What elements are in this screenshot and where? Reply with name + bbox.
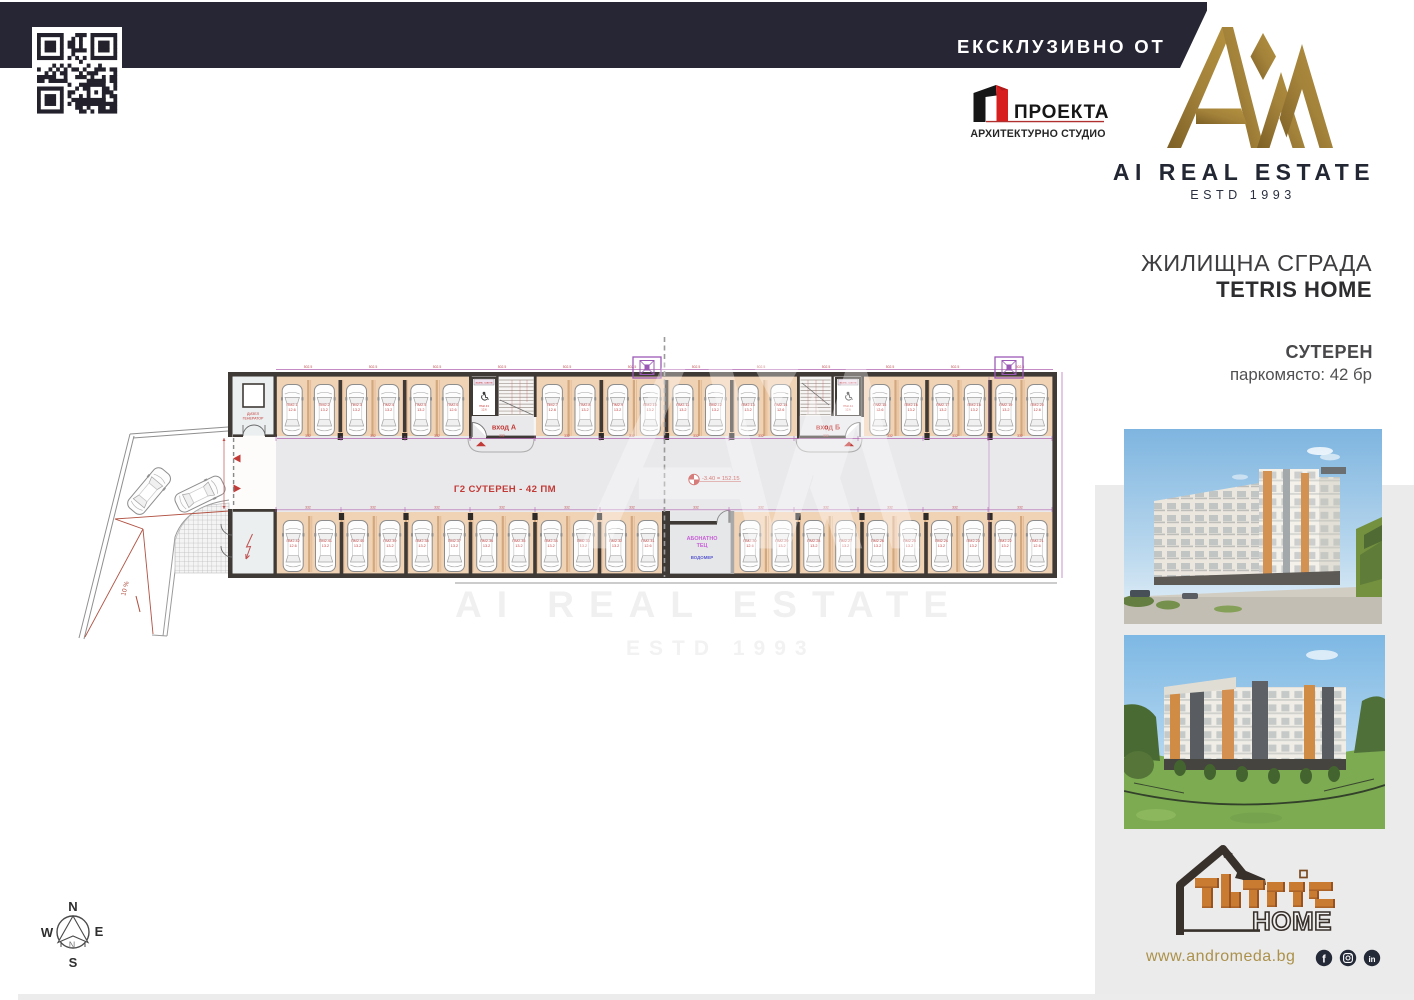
svg-text:ПМ2.17: ПМ2.17 bbox=[936, 403, 949, 407]
svg-text:ПМ2.22: ПМ2.22 bbox=[998, 539, 1011, 543]
svg-text:332: 332 bbox=[499, 505, 505, 509]
svg-text:13.2: 13.2 bbox=[1001, 544, 1008, 548]
svg-text:332: 332 bbox=[305, 434, 311, 438]
svg-text:13.2: 13.2 bbox=[354, 544, 361, 548]
svg-text:ПМ2.6: ПМ2.6 bbox=[447, 403, 458, 407]
svg-text:13.2: 13.2 bbox=[908, 408, 915, 412]
svg-text:12.6: 12.6 bbox=[777, 408, 784, 412]
svg-text:W: W bbox=[41, 925, 54, 940]
svg-text:N: N bbox=[68, 899, 77, 914]
svg-text:502.5: 502.5 bbox=[304, 365, 313, 369]
svg-text:13.2: 13.2 bbox=[418, 544, 425, 548]
svg-text:13.2: 13.2 bbox=[353, 408, 360, 412]
svg-text:ПМ2.19: ПМ2.19 bbox=[999, 403, 1012, 407]
svg-text:ПМ2.36: ПМ2.36 bbox=[480, 539, 493, 543]
svg-text:ПМ2.5: ПМ2.5 bbox=[415, 403, 426, 407]
svg-text:ДИЗЕЛ: ДИЗЕЛ bbox=[247, 412, 260, 416]
svg-text:асанс. шахта: асанс. шахта bbox=[476, 380, 493, 384]
svg-text:502.5: 502.5 bbox=[951, 365, 960, 369]
svg-text:12.6: 12.6 bbox=[289, 544, 296, 548]
svg-text:332: 332 bbox=[499, 434, 505, 438]
svg-text:ПМ2.8: ПМ2.8 bbox=[579, 403, 590, 407]
svg-text:13.2: 13.2 bbox=[614, 408, 621, 412]
svg-text:ПМ2.2: ПМ2.2 bbox=[319, 403, 330, 407]
svg-text:ПМ2.35: ПМ2.35 bbox=[512, 539, 525, 543]
svg-text:332: 332 bbox=[1017, 434, 1023, 438]
svg-text:ПМ2.31: ПМ2.31 bbox=[641, 539, 654, 543]
svg-text:13.2: 13.2 bbox=[515, 544, 522, 548]
svg-text:13.2: 13.2 bbox=[938, 544, 945, 548]
svg-text:ПМ2.9: ПМ2.9 bbox=[612, 403, 623, 407]
svg-text:ТЕЦ: ТЕЦ bbox=[697, 543, 708, 549]
svg-text:13.2: 13.2 bbox=[483, 544, 490, 548]
svg-text:332: 332 bbox=[758, 434, 764, 438]
svg-text:13.2: 13.2 bbox=[612, 544, 619, 548]
svg-text:13.2: 13.2 bbox=[874, 544, 881, 548]
svg-text:332: 332 bbox=[629, 505, 635, 509]
svg-text:12.6: 12.6 bbox=[449, 408, 456, 412]
svg-text:12.6: 12.6 bbox=[288, 408, 295, 412]
svg-text:Г2 СУТЕРЕН - 42 ПМ: Г2 СУТЕРЕН - 42 ПМ bbox=[454, 484, 556, 495]
svg-text:502.5: 502.5 bbox=[628, 365, 637, 369]
svg-text:ПМ2.21: ПМ2.21 bbox=[1030, 539, 1043, 543]
svg-text:332: 332 bbox=[952, 434, 958, 438]
svg-text:332: 332 bbox=[305, 505, 311, 509]
svg-text:ПМ2.18: ПМ2.18 bbox=[968, 403, 981, 407]
svg-text:ПМ2.11: ПМ2.11 bbox=[676, 403, 689, 407]
svg-text:ВОДОМЕР: ВОДОМЕР bbox=[691, 555, 714, 560]
svg-text:332: 332 bbox=[370, 505, 376, 509]
svg-text:ПМ2.23: ПМ2.23 bbox=[967, 539, 980, 543]
svg-text:ПМ2.28: ПМ2.28 bbox=[807, 539, 820, 543]
svg-text:ПМ2.3: ПМ2.3 bbox=[351, 403, 362, 407]
svg-text:332: 332 bbox=[693, 434, 699, 438]
svg-text:13.2: 13.2 bbox=[810, 544, 817, 548]
svg-text:12.6: 12.6 bbox=[1034, 408, 1041, 412]
svg-text:ПМ2.34: ПМ2.34 bbox=[544, 539, 557, 543]
svg-text:ПМ2.39: ПМ2.39 bbox=[383, 539, 396, 543]
svg-text:13.2: 13.2 bbox=[321, 408, 328, 412]
svg-text:13.2: 13.2 bbox=[417, 408, 424, 412]
svg-text:13.2: 13.2 bbox=[386, 544, 393, 548]
svg-text:332: 332 bbox=[564, 434, 570, 438]
svg-text:АБОНАТНО: АБОНАТНО bbox=[687, 536, 718, 542]
svg-text:ПМ2.7: ПМ2.7 bbox=[547, 403, 558, 407]
svg-text:13.2: 13.2 bbox=[679, 408, 686, 412]
svg-text:ПМ2.4: ПМ2.4 bbox=[383, 403, 394, 407]
svg-text:332: 332 bbox=[434, 505, 440, 509]
svg-text:N: N bbox=[69, 940, 76, 950]
svg-text:ПМ2.37: ПМ2.37 bbox=[448, 539, 461, 543]
svg-text:332: 332 bbox=[887, 434, 893, 438]
svg-text:332: 332 bbox=[370, 434, 376, 438]
svg-text:502.5: 502.5 bbox=[692, 365, 701, 369]
svg-text:ПМ2.16: ПМ2.16 bbox=[905, 403, 918, 407]
svg-text:13.2: 13.2 bbox=[970, 544, 977, 548]
svg-text:12.6: 12.6 bbox=[549, 408, 556, 412]
svg-text:ПМ2.40: ПМ2.40 bbox=[351, 539, 364, 543]
svg-text:13.2: 13.2 bbox=[1002, 408, 1009, 412]
svg-text:ПМ2.1: ПМ2.1 bbox=[287, 403, 298, 407]
svg-text:13.2: 13.2 bbox=[744, 408, 751, 412]
svg-text:13.2: 13.2 bbox=[971, 408, 978, 412]
svg-text:ПМ2.13: ПМ2.13 bbox=[741, 403, 754, 407]
svg-text:12.6: 12.6 bbox=[644, 544, 651, 548]
svg-text:E: E bbox=[95, 924, 104, 939]
svg-text:13.2: 13.2 bbox=[712, 408, 719, 412]
svg-text:13.2: 13.2 bbox=[581, 408, 588, 412]
svg-text:12.6: 12.6 bbox=[481, 407, 487, 411]
svg-text:502.5: 502.5 bbox=[433, 365, 442, 369]
svg-text:ПМ2.24: ПМ2.24 bbox=[935, 539, 948, 543]
svg-text:ПМ2.41: ПМ2.41 bbox=[319, 539, 332, 543]
svg-text:ПМ2.42: ПМ2.42 bbox=[286, 539, 299, 543]
svg-text:332: 332 bbox=[564, 505, 570, 509]
svg-text:S: S bbox=[69, 955, 78, 970]
svg-text:502.5: 502.5 bbox=[822, 365, 831, 369]
svg-text:332: 332 bbox=[952, 505, 958, 509]
svg-text:502.5: 502.5 bbox=[498, 365, 507, 369]
svg-text:13.2: 13.2 bbox=[939, 408, 946, 412]
svg-text:332: 332 bbox=[1017, 505, 1023, 509]
svg-text:13.2: 13.2 bbox=[451, 544, 458, 548]
svg-text:ПМ2.26: ПМ2.26 bbox=[871, 539, 884, 543]
svg-text:ПМ2.38: ПМ2.38 bbox=[415, 539, 428, 543]
svg-text:13.2: 13.2 bbox=[322, 544, 329, 548]
svg-text:10 %: 10 % bbox=[120, 580, 131, 596]
svg-text:ГЕНЕРАТОР: ГЕНЕРАТОР bbox=[243, 417, 264, 421]
svg-text:502.5: 502.5 bbox=[886, 365, 895, 369]
svg-text:13.2: 13.2 bbox=[385, 408, 392, 412]
svg-text:ПМ2.20: ПМ2.20 bbox=[1031, 403, 1044, 407]
svg-text:вход А: вход А bbox=[492, 423, 516, 432]
svg-text:502.5: 502.5 bbox=[369, 365, 378, 369]
svg-text:13.2: 13.2 bbox=[547, 544, 554, 548]
svg-text:332: 332 bbox=[434, 434, 440, 438]
svg-text:502.5: 502.5 bbox=[563, 365, 572, 369]
svg-text:12.6: 12.6 bbox=[1033, 544, 1040, 548]
svg-text:332: 332 bbox=[693, 505, 699, 509]
